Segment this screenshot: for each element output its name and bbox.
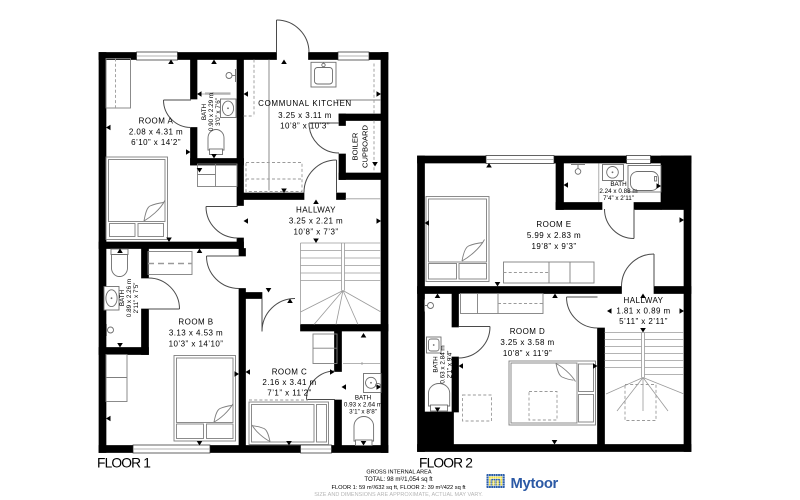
svg-text:3.25 x 3.11 m: 3.25 x 3.11 m: [278, 111, 332, 120]
svg-text:7’4” x 2’11”: 7’4” x 2’11”: [603, 195, 634, 202]
svg-text:5.99 x 2.83 m: 5.99 x 2.83 m: [527, 231, 581, 240]
svg-text:3.25 x 3.58 m: 3.25 x 3.58 m: [500, 338, 554, 347]
svg-text:CUPBOARD: CUPBOARD: [361, 124, 370, 168]
svg-text:BATH: BATH: [201, 103, 208, 120]
svg-text:2’1” x 9’4”: 2’1” x 9’4”: [447, 351, 454, 379]
svg-text:10’8” x 10’3”: 10’8” x 10’3”: [280, 122, 330, 131]
svg-text:BATH: BATH: [355, 395, 372, 402]
svg-text:BATH: BATH: [610, 181, 627, 188]
svg-text:BOILER: BOILER: [351, 132, 360, 160]
svg-text:0.90 x 2.29 m: 0.90 x 2.29 m: [208, 93, 215, 131]
svg-text:SIZE AND DIMENSIONS ARE APPROX: SIZE AND DIMENSIONS ARE APPROXIMATE, ACT…: [314, 492, 483, 498]
svg-text:BATH: BATH: [433, 356, 440, 373]
svg-text:1.81 x 0.89 m: 1.81 x 0.89 m: [616, 307, 670, 316]
svg-text:COMMUNAL KITCHEN: COMMUNAL KITCHEN: [258, 99, 352, 108]
svg-text:2.24 x 0.88 m: 2.24 x 0.88 m: [599, 188, 637, 195]
svg-text:0.93 x 2.64 m: 0.93 x 2.64 m: [344, 402, 382, 409]
svg-text:19’8” x 9’3”: 19’8” x 9’3”: [532, 242, 577, 251]
svg-text:HALLWAY: HALLWAY: [296, 206, 336, 215]
svg-text:TOTAL: 98 m²/1,054 sq ft: TOTAL: 98 m²/1,054 sq ft: [364, 476, 432, 483]
svg-text:FLOOR 1: 59 m²/632 sq ft, FLOO: FLOOR 1: 59 m²/632 sq ft, FLOOR 2: 39 m²…: [331, 485, 465, 491]
svg-text:2.16 x 3.41 m: 2.16 x 3.41 m: [262, 378, 316, 387]
svg-text:ROOM C: ROOM C: [272, 368, 308, 377]
svg-text:10’3” x 14’10”: 10’3” x 14’10”: [169, 340, 224, 349]
svg-text:3.25 x 2.21 m: 3.25 x 2.21 m: [289, 217, 343, 226]
svg-text:3’0” x 7’6”: 3’0” x 7’6”: [215, 98, 222, 126]
svg-text:10’8” x 11’9”: 10’8” x 11’9”: [503, 349, 552, 358]
svg-text:0.63 x 2.84 m: 0.63 x 2.84 m: [440, 345, 447, 383]
svg-text:0.89 x 2.26 m: 0.89 x 2.26 m: [126, 279, 133, 317]
svg-text:10’8” x 7’3”: 10’8” x 7’3”: [294, 228, 339, 237]
svg-text:FLOOR 2: FLOOR 2: [419, 456, 472, 471]
svg-text:2’11” x 7’5”: 2’11” x 7’5”: [133, 283, 140, 314]
svg-text:FLOOR 1: FLOOR 1: [97, 456, 150, 471]
svg-text:2.08 x 4.31 m: 2.08 x 4.31 m: [129, 128, 183, 137]
svg-text:6’10” x 14’2”: 6’10” x 14’2”: [131, 138, 181, 147]
svg-text:7’1” x 11’2”: 7’1” x 11’2”: [267, 389, 311, 398]
svg-text:3.13 x 4.53 m: 3.13 x 4.53 m: [169, 329, 223, 338]
svg-text:ROOM D: ROOM D: [510, 327, 546, 336]
svg-text:5’11” x 2’11”: 5’11” x 2’11”: [619, 317, 668, 326]
svg-text:ROOM E: ROOM E: [536, 220, 571, 229]
svg-text:3’1” x 8’8”: 3’1” x 8’8”: [349, 409, 377, 416]
svg-text:GROSS INTERNAL AREA: GROSS INTERNAL AREA: [366, 470, 431, 476]
svg-text:ROOM A: ROOM A: [139, 117, 174, 126]
svg-text:ROOM B: ROOM B: [178, 318, 213, 327]
svg-text:Mytoor: Mytoor: [511, 476, 559, 492]
svg-text:BATH: BATH: [119, 289, 126, 306]
